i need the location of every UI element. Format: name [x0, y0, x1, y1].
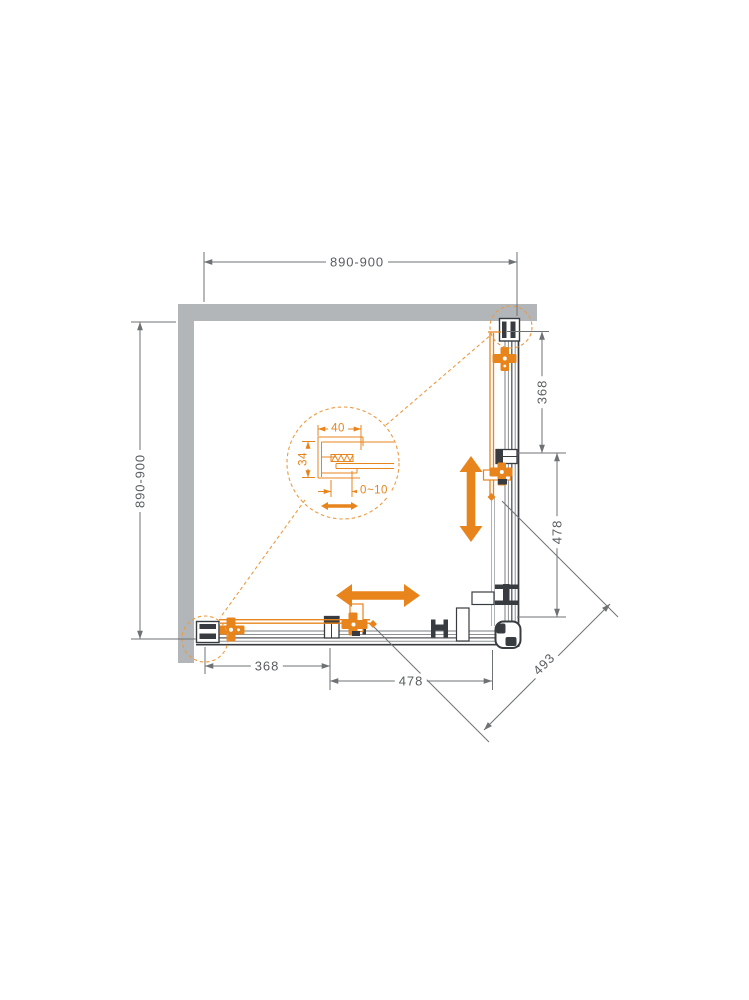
dim-label-bottom-fixed-panel: 368 — [251, 659, 283, 674]
top-wall — [178, 304, 537, 321]
slide-direction-arrows — [336, 456, 483, 607]
right-door-top-rollers — [493, 347, 517, 371]
dim-label-left-depth: 890-900 — [133, 450, 148, 512]
detail-gasket-hatch — [331, 455, 353, 462]
detail-label-profile-depth: 34 — [298, 449, 311, 469]
dimension-drawing: 890-900 890-900 368 478 368 478 493 40 3… — [0, 0, 749, 1000]
detail-move-arrow — [321, 502, 358, 510]
horizontal-slide-arrow-icon — [336, 584, 420, 607]
vertical-slide-arrow-icon — [460, 456, 483, 542]
right-wall-profile — [500, 319, 520, 342]
bottom-door-edge-dot — [369, 620, 377, 628]
detail-dim-adjustment — [318, 471, 360, 497]
right-glass-clamp — [496, 450, 517, 464]
dim-label-bottom-door-opening: 478 — [395, 674, 427, 689]
right-door-stopper — [472, 584, 518, 605]
dim-label-right-fixed-panel: 368 — [535, 376, 550, 408]
bottom-wall-profile — [197, 622, 220, 643]
callout-leader-top — [386, 334, 492, 425]
corner-connector — [496, 622, 521, 649]
dim-label-top-width: 890-900 — [326, 255, 388, 270]
right-panel-assembly — [472, 318, 520, 647]
bottom-sliding-door — [219, 604, 377, 642]
detail-label-adjustment-range: 0~10 — [357, 485, 391, 498]
left-wall — [178, 304, 194, 663]
detail-label-profile-width: 40 — [328, 423, 348, 436]
drawing-canvas — [0, 0, 749, 1000]
dim-diagonal-entry — [374, 501, 618, 742]
callout-leader-bottom — [220, 500, 305, 618]
bottom-door-stopper — [431, 608, 469, 641]
dim-label-right-door-opening: 478 — [550, 516, 565, 548]
